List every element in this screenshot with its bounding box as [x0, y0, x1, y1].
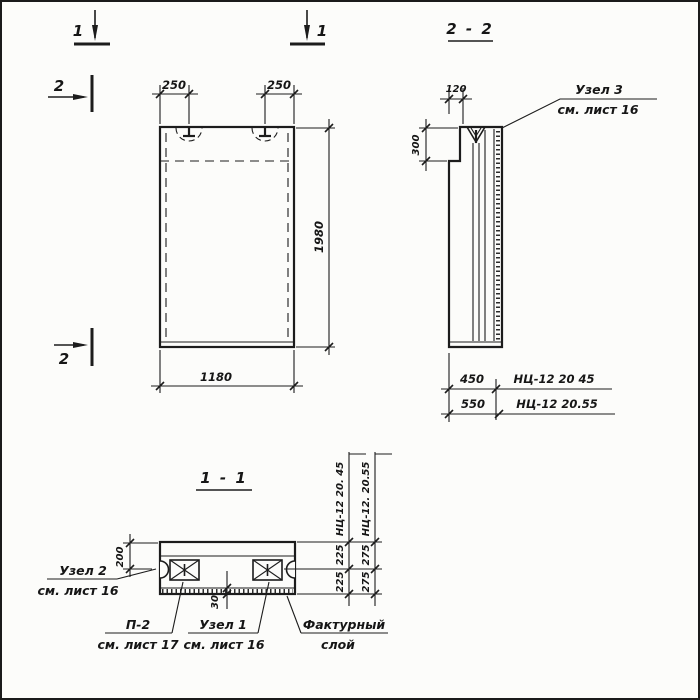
- dim-text: 300: [411, 135, 422, 156]
- arrow-right-icon: [73, 94, 88, 100]
- section-1-1: 1 - 1 200: [37, 452, 392, 652]
- cut-label-1-left: 1: [73, 22, 83, 40]
- section-marker-2-bottom: 2: [54, 328, 92, 368]
- dim-text: 250: [267, 78, 291, 92]
- callout-ref: см. лист 16: [557, 102, 638, 117]
- product-mark: НЦ-12 20.55: [516, 397, 597, 411]
- dim-300: 300: [411, 119, 458, 171]
- front-view: 250 250 1980 1180: [151, 78, 335, 393]
- dim-text: 1980: [312, 221, 326, 253]
- callout-node3: Узел 3 см. лист 16: [502, 82, 657, 128]
- callout-title: П-2: [126, 617, 150, 632]
- section-title: 2 - 2: [446, 20, 494, 38]
- lifting-loop-right: [252, 128, 278, 141]
- edge-notch-left: [160, 561, 169, 578]
- dim-text: 200: [115, 547, 126, 568]
- arrow-right-icon: [73, 342, 88, 348]
- product-mark: НЦ-12 20. 45: [335, 462, 346, 536]
- drawing-sheet: 1 1 2 2: [0, 0, 700, 700]
- dim-text: 225: [335, 545, 346, 566]
- callout-ref: слой: [321, 637, 355, 652]
- dim-text: 225: [335, 572, 346, 593]
- cut-label-1-right: 1: [317, 22, 327, 40]
- section-title: 1 - 1: [200, 469, 248, 487]
- dim-text: 550: [461, 397, 485, 411]
- callout-ref: см. лист 16: [183, 637, 264, 652]
- cut-label-2-bottom: 2: [59, 350, 69, 368]
- callout-title: Фактурный: [303, 617, 386, 632]
- dim-550-row: 550 НЦ-12 20.55: [441, 397, 615, 418]
- arrow-down-icon: [304, 25, 310, 41]
- product-mark: НЦ-12 20 45: [513, 372, 594, 386]
- dim-text: 1180: [200, 370, 232, 384]
- dim-450-row: 450 НЦ-12 20 45: [441, 353, 612, 422]
- dim-250-right: 250: [256, 78, 302, 124]
- channel-right: [253, 560, 282, 580]
- arrow-down-icon: [92, 25, 98, 41]
- dim-text: 275: [361, 572, 372, 593]
- dim-1980: 1980: [296, 119, 335, 355]
- dim-text: 450: [459, 372, 484, 386]
- callout-ref: см. лист 16: [37, 583, 118, 598]
- callout-facing-layer: Фактурный слой: [287, 596, 388, 652]
- product-mark: НЦ-12. 20.55: [361, 462, 372, 537]
- section-marker-1-right: 1: [290, 10, 327, 44]
- panel-outline: [160, 127, 294, 347]
- dim-text: 250: [162, 78, 186, 92]
- section-marker-1-left: 1: [73, 10, 110, 44]
- dim-text: 275: [361, 545, 372, 566]
- lifting-loop-left: [176, 128, 202, 141]
- thickness-chains: НЦ-12 20. 45 225 225 НЦ-12. 20.55 275 27…: [284, 452, 392, 606]
- dim-text: 30: [210, 595, 221, 609]
- dim-250-left: 250: [152, 78, 198, 124]
- cut-label-2-top: 2: [54, 77, 64, 95]
- section-2-2: 2 - 2 120 300: [411, 20, 657, 422]
- panel-drawing-canvas: 1 1 2 2: [2, 2, 700, 700]
- dim-1180: 1180: [151, 350, 303, 393]
- callout-ref: см. лист 17: [97, 637, 178, 652]
- callout-title: Узел 1: [199, 617, 247, 632]
- dim-text: 120: [446, 84, 467, 95]
- chain-55: НЦ-12. 20.55 275 275: [361, 452, 392, 606]
- joint-funnel: [467, 127, 485, 143]
- dim-120: 120: [440, 84, 472, 124]
- callout-title: Узел 2: [59, 563, 107, 578]
- channel-left: [170, 560, 199, 580]
- callout-node2: Узел 2 см. лист 16: [37, 563, 156, 598]
- section-marker-2-top: 2: [48, 75, 92, 112]
- callout-title: Узел 3: [575, 82, 623, 97]
